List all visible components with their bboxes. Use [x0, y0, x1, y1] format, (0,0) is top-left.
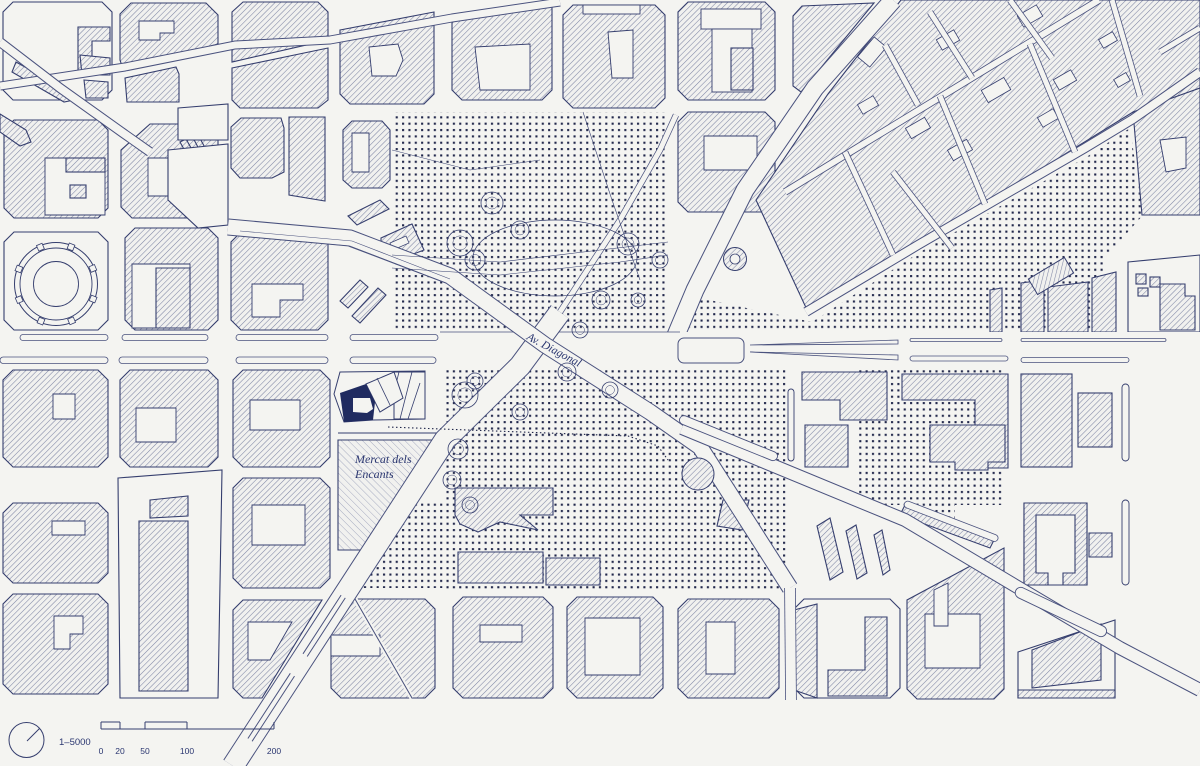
svg-text:200: 200 [267, 746, 281, 756]
svg-text:20: 20 [115, 746, 125, 756]
svg-text:1–5000: 1–5000 [59, 737, 91, 748]
svg-text:Encants: Encants [354, 467, 394, 481]
svg-text:Mercat dels: Mercat dels [354, 452, 412, 466]
svg-text:0: 0 [99, 746, 104, 756]
svg-text:100: 100 [180, 746, 194, 756]
svg-text:50: 50 [140, 746, 150, 756]
